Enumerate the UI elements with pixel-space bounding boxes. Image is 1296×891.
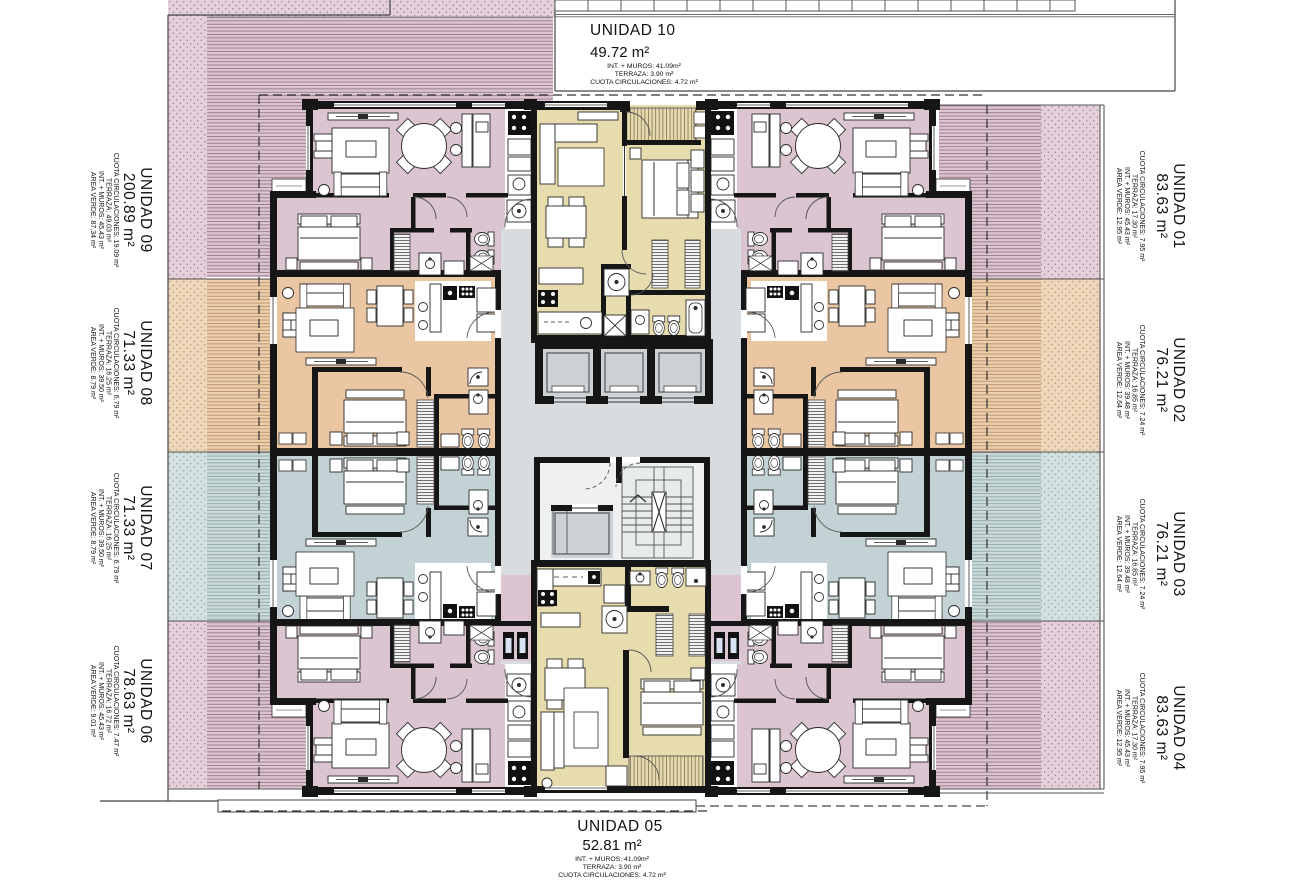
svg-text:CUOTA CIRCULACIONES: 7.95 m²: CUOTA CIRCULACIONES: 7.95 m²: [1138, 151, 1145, 262]
svg-text:AREA VERDE: 12.64 m²: AREA VERDE: 12.64 m²: [1115, 516, 1122, 593]
svg-text:UNIDAD 10: UNIDAD 10: [590, 22, 675, 39]
svg-text:71.33 m²: 71.33 m²: [120, 330, 137, 395]
svg-text:76.21 m²: 76.21 m²: [1153, 521, 1170, 586]
svg-text:TERRAZA: 16.72 m²: TERRAZA: 16.72 m²: [104, 669, 111, 734]
svg-text:TERRAZA: 17.30 m²: TERRAZA: 17.30 m²: [1130, 696, 1137, 761]
svg-text:49.72 m²: 49.72 m²: [590, 44, 649, 61]
svg-text:AREA VERDE: 12.95 m²: AREA VERDE: 12.95 m²: [1115, 690, 1122, 767]
svg-text:CUOTA CIRCULACIONES: 7.24 m²: CUOTA CIRCULACIONES: 7.24 m²: [1138, 499, 1145, 610]
svg-text:INT. + MUROS: 45.43 m²: INT. + MUROS: 45.43 m²: [1123, 167, 1130, 246]
svg-text:78.63 m²: 78.63 m²: [120, 668, 137, 733]
svg-text:UNIDAD 02: UNIDAD 02: [1170, 337, 1187, 422]
svg-text:AREA VERDE: 8.79 m²: AREA VERDE: 8.79 m²: [89, 492, 96, 565]
svg-text:TERRAZA: 3.90 m²: TERRAZA: 3.90 m²: [615, 71, 674, 78]
svg-text:UNIDAD 08: UNIDAD 08: [137, 320, 154, 405]
svg-text:AREA VERDE: 87.34 m²: AREA VERDE: 87.34 m²: [89, 172, 96, 249]
svg-text:AREA VERDE: 8.79 m²: AREA VERDE: 8.79 m²: [89, 327, 96, 400]
svg-text:76.21 m²: 76.21 m²: [1153, 347, 1170, 412]
svg-text:52.81 m²: 52.81 m²: [582, 837, 641, 854]
svg-text:INT. + MUROS: 39.50 m²: INT. + MUROS: 39.50 m²: [97, 489, 104, 568]
svg-text:200.89 m²: 200.89 m²: [120, 173, 137, 247]
svg-text:TERRAZA: 16.25 m²: TERRAZA: 16.25 m²: [104, 331, 111, 396]
svg-text:UNIDAD 01: UNIDAD 01: [1170, 163, 1187, 248]
svg-text:CUOTA CIRCULACIONES: 7.47 m²: CUOTA CIRCULACIONES: 7.47 m²: [112, 646, 119, 757]
svg-text:AREA VERDE: 12.95 m²: AREA VERDE: 12.95 m²: [1115, 168, 1122, 245]
svg-text:CUOTA CIRCULACIONES: 7.24 m²: CUOTA CIRCULACIONES: 7.24 m²: [1138, 325, 1145, 436]
svg-text:INT. + MUROS: 39.48 m²: INT. + MUROS: 39.48 m²: [1123, 341, 1130, 420]
svg-text:TERRAZA: 49.03 m²: TERRAZA: 49.03 m²: [104, 178, 111, 243]
svg-text:CUOTA CIRCULACIONES: 19.09 m²: CUOTA CIRCULACIONES: 19.09 m²: [112, 153, 119, 268]
svg-text:TERRAZA: 3.90 m²: TERRAZA: 3.90 m²: [583, 864, 642, 871]
svg-text:UNIDAD 05: UNIDAD 05: [577, 818, 662, 835]
svg-text:TERRAZA: 17.30 m²: TERRAZA: 17.30 m²: [1130, 174, 1137, 239]
svg-text:INT. + MUROS: 45.43 m²: INT. + MUROS: 45.43 m²: [1123, 689, 1130, 768]
svg-text:71.33 m²: 71.33 m²: [120, 495, 137, 560]
svg-text:INT. + MUROS: 45.43 m²: INT. + MUROS: 45.43 m²: [97, 171, 104, 250]
svg-text:INT. + MUROS: 41.09m²: INT. + MUROS: 41.09m²: [607, 63, 682, 70]
svg-text:INT. + MUROS: 41.09m²: INT. + MUROS: 41.09m²: [575, 856, 650, 863]
svg-text:UNIDAD 06: UNIDAD 06: [137, 658, 154, 743]
svg-text:UNIDAD 09: UNIDAD 09: [137, 167, 154, 252]
svg-text:AREA VERDE: 12.64 m²: AREA VERDE: 12.64 m²: [1115, 342, 1122, 419]
svg-text:TERRAZA: 16.25 m²: TERRAZA: 16.25 m²: [104, 496, 111, 561]
svg-text:UNIDAD 07: UNIDAD 07: [137, 485, 154, 570]
svg-text:AREA VERDE: 9.01 m²: AREA VERDE: 9.01 m²: [89, 665, 96, 738]
svg-text:INT. + MUROS: 39.48 m²: INT. + MUROS: 39.48 m²: [1123, 515, 1130, 594]
svg-text:INT. + MUROS: 45.43 m²: INT. + MUROS: 45.43 m²: [97, 662, 104, 741]
svg-text:CUOTA CIRCULACIONES: 6.79 m²: CUOTA CIRCULACIONES: 6.79 m²: [112, 308, 119, 419]
svg-text:UNIDAD 04: UNIDAD 04: [1170, 685, 1187, 770]
svg-text:TERRAZA: 16.85 m²: TERRAZA: 16.85 m²: [1130, 348, 1137, 413]
svg-text:INT. + MUROS: 39.50 m²: INT. + MUROS: 39.50 m²: [97, 324, 104, 403]
svg-text:CUOTA CIRCULACIONES: 4.72 m²: CUOTA CIRCULACIONES: 4.72 m²: [558, 872, 666, 879]
svg-text:83.63 m²: 83.63 m²: [1153, 173, 1170, 238]
svg-text:UNIDAD 03: UNIDAD 03: [1170, 511, 1187, 596]
svg-text:CUOTA CIRCULACIONES: 6.79 m²: CUOTA CIRCULACIONES: 6.79 m²: [112, 473, 119, 584]
svg-text:CUOTA CIRCULACIONES: 4.72 m²: CUOTA CIRCULACIONES: 4.72 m²: [590, 79, 698, 86]
svg-text:TERRAZA: 16.85 m²: TERRAZA: 16.85 m²: [1130, 522, 1137, 587]
svg-text:CUOTA CIRCULACIONES: 7.95 m²: CUOTA CIRCULACIONES: 7.95 m²: [1138, 673, 1145, 784]
svg-text:83.63 m²: 83.63 m²: [1153, 695, 1170, 760]
